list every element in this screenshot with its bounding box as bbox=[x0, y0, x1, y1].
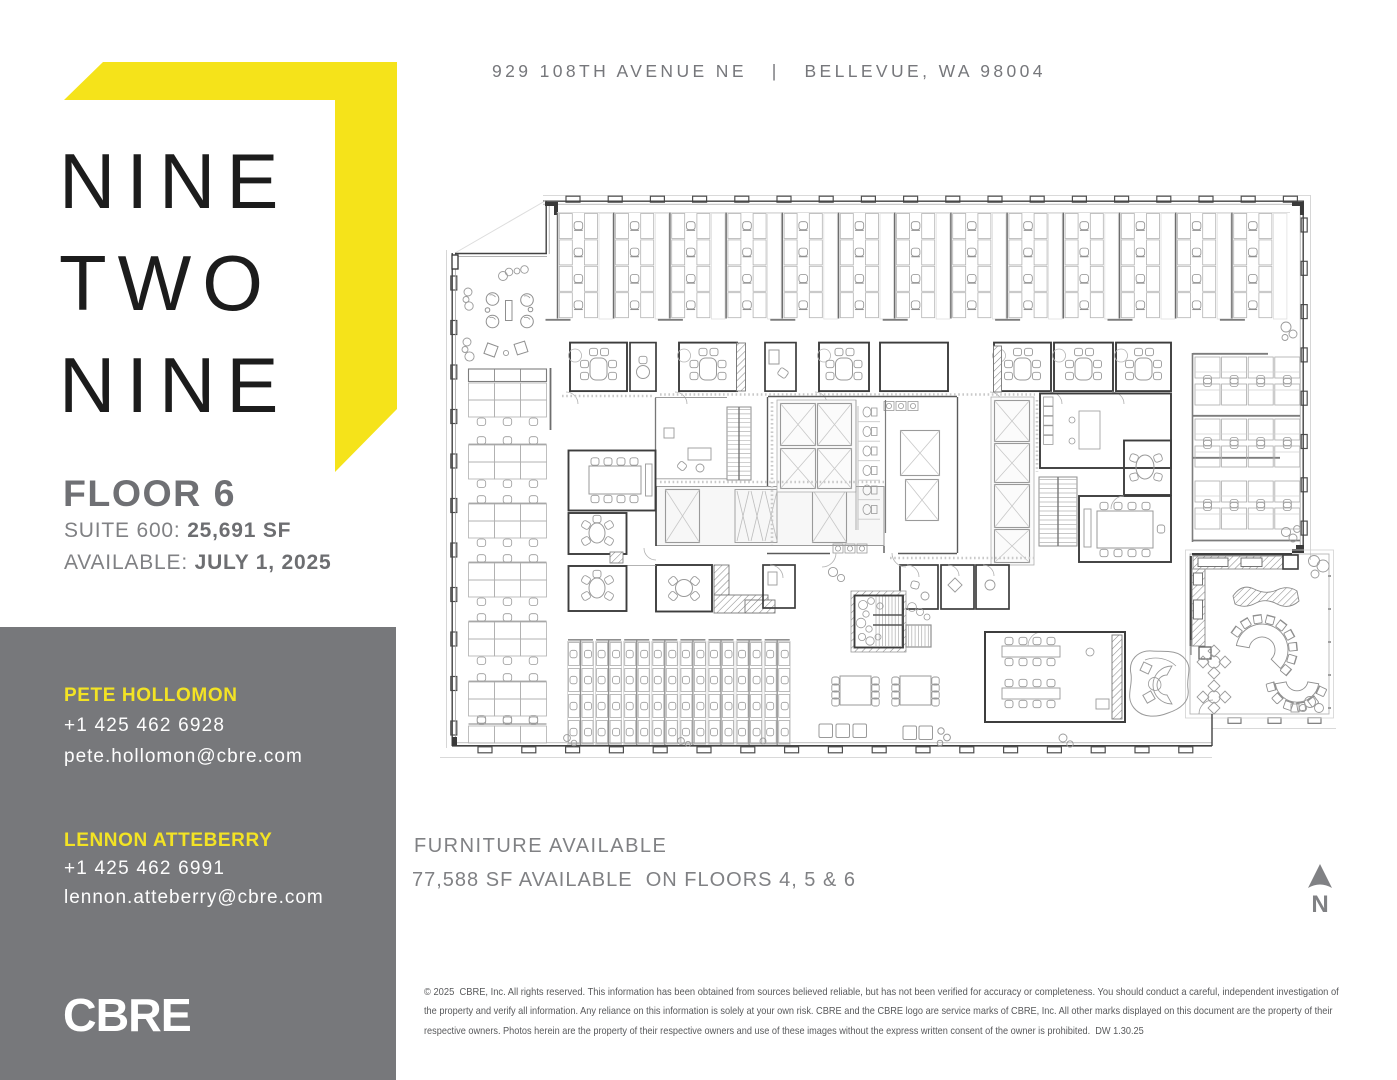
svg-text:N: N bbox=[1311, 891, 1328, 915]
